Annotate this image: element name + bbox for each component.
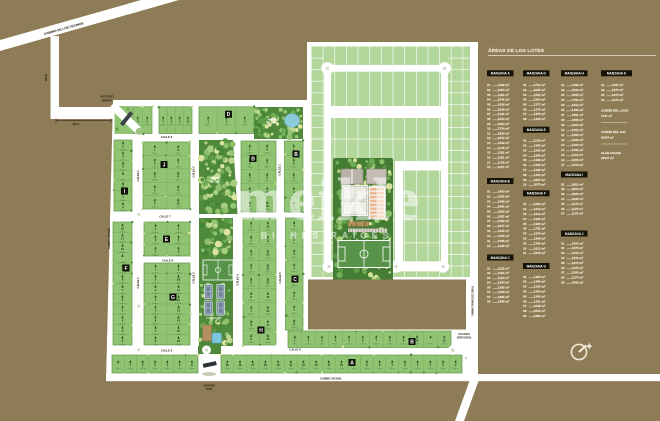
svg-text:......1208 m²: ......1208 m²	[567, 158, 584, 162]
svg-text:04: 04	[601, 98, 605, 102]
svg-text:16: 16	[561, 158, 565, 162]
svg-text:01: 01	[561, 182, 565, 186]
svg-text:D: D	[227, 112, 231, 118]
svg-text:10: 10	[177, 278, 181, 282]
svg-text:......1079 m²: ......1079 m²	[567, 163, 584, 167]
svg-text:10: 10	[121, 247, 125, 251]
svg-text:......1174 m²: ......1174 m²	[567, 276, 584, 280]
svg-text:......1054 m²: ......1054 m²	[493, 88, 510, 92]
svg-text:14: 14	[561, 148, 565, 152]
svg-text:05: 05	[487, 102, 491, 106]
svg-text:......1581 m²: ......1581 m²	[567, 113, 584, 117]
svg-text:09: 09	[523, 241, 527, 245]
svg-text:03: 03	[523, 148, 527, 152]
svg-text:02: 02	[487, 271, 491, 275]
svg-text:......1993 m²: ......1993 m²	[529, 98, 546, 102]
svg-text:......1081 m²: ......1081 m²	[493, 204, 510, 208]
svg-text:05: 05	[523, 294, 527, 298]
svg-text:03: 03	[523, 93, 527, 97]
svg-text:09: 09	[561, 123, 565, 127]
svg-text:SUR: SUR	[206, 387, 212, 391]
svg-text:......1750 m²: ......1750 m²	[567, 98, 584, 102]
svg-text:......2548 m²: ......2548 m²	[529, 304, 546, 308]
svg-text:10: 10	[186, 119, 190, 123]
svg-text:15: 15	[266, 295, 270, 299]
svg-text:......1865 m²: ......1865 m²	[493, 300, 510, 304]
svg-text:07: 07	[523, 304, 527, 308]
svg-text:05: 05	[523, 102, 527, 106]
svg-text:800 m: 800 m	[45, 74, 48, 81]
svg-text:18: 18	[238, 363, 242, 367]
svg-text:......1489 m²: ......1489 m²	[567, 108, 584, 112]
svg-text:13: 13	[302, 363, 306, 367]
svg-text:03: 03	[523, 212, 527, 216]
svg-text:07: 07	[523, 232, 527, 236]
svg-text:......1063 m²: ......1063 m²	[493, 229, 510, 233]
svg-text:05: 05	[523, 222, 527, 226]
svg-text:F: F	[124, 266, 127, 272]
svg-text:01: 01	[523, 83, 527, 87]
svg-text:......2712 m²: ......2712 m²	[529, 83, 546, 87]
svg-text:05: 05	[487, 209, 491, 213]
svg-text:17: 17	[487, 160, 491, 164]
svg-text:12: 12	[561, 138, 565, 142]
svg-text:......1234 m²: ......1234 m²	[493, 281, 510, 285]
svg-text:11: 11	[487, 239, 491, 243]
svg-text:......1714 m²: ......1714 m²	[493, 127, 510, 131]
svg-text:......1320 m²: ......1320 m²	[529, 285, 546, 289]
svg-text:06: 06	[523, 299, 527, 303]
svg-text:......1082 m²: ......1082 m²	[493, 209, 510, 213]
svg-text:......1041 m²: ......1041 m²	[493, 98, 510, 102]
svg-text:08: 08	[561, 118, 565, 122]
svg-text:......2228 m²: ......2228 m²	[567, 197, 584, 201]
svg-text:11: 11	[177, 288, 180, 292]
svg-text:11: 11	[487, 131, 491, 135]
svg-text:16: 16	[487, 156, 491, 160]
svg-text:......1199 m²: ......1199 m²	[493, 112, 510, 116]
svg-text:04: 04	[487, 98, 491, 102]
svg-text:B: B	[294, 152, 298, 158]
svg-text:03: 03	[601, 93, 605, 97]
svg-text:......1175 m²: ......1175 m²	[567, 207, 584, 211]
svg-text:......1810 m²: ......1810 m²	[529, 246, 546, 250]
svg-text:......1868 m²: ......1868 m²	[529, 237, 546, 241]
svg-text:......1184 m²: ......1184 m²	[493, 276, 510, 280]
svg-text:02: 02	[561, 187, 565, 191]
svg-text:......1339 m²: ......1339 m²	[493, 83, 510, 87]
svg-text:10: 10	[177, 202, 181, 206]
svg-text:15: 15	[561, 153, 565, 157]
svg-text:02: 02	[523, 88, 527, 92]
svg-text:......1558 m²: ......1558 m²	[567, 118, 584, 122]
svg-text:......1461 m²: ......1461 m²	[529, 299, 546, 303]
svg-text:......1394 m²: ......1394 m²	[529, 173, 546, 177]
svg-text:17: 17	[266, 323, 270, 327]
svg-text:03: 03	[561, 93, 565, 97]
svg-text:......1000 m²: ......1000 m²	[567, 133, 584, 137]
svg-text:07: 07	[487, 219, 491, 223]
svg-text:......1875 m²: ......1875 m²	[529, 232, 546, 236]
svg-text:01: 01	[487, 83, 491, 87]
svg-text:01: 01	[523, 202, 527, 206]
svg-text:G: G	[171, 295, 175, 301]
svg-text:04: 04	[523, 290, 527, 294]
svg-text:05: 05	[523, 158, 527, 162]
svg-text:800 m: 800 m	[73, 123, 80, 126]
svg-text:14: 14	[266, 281, 270, 285]
svg-text:MANZANA D: MANZANA D	[527, 72, 547, 76]
svg-text:CALLE 5: CALLE 5	[278, 272, 282, 284]
svg-text:01: 01	[561, 83, 565, 87]
svg-text:meikle: meikle	[236, 166, 421, 232]
svg-text:02: 02	[487, 194, 491, 198]
svg-text:MANZANA E: MANZANA E	[527, 128, 546, 132]
svg-text:......1044 m²: ......1044 m²	[493, 117, 510, 121]
svg-text:14: 14	[289, 363, 293, 367]
svg-text:......1484 m²: ......1484 m²	[529, 280, 546, 284]
svg-text:07: 07	[561, 212, 565, 216]
svg-text:19: 19	[226, 363, 230, 367]
svg-text:05: 05	[561, 261, 565, 265]
svg-text:......1514 m²: ......1514 m²	[567, 103, 584, 107]
svg-text:......1055 m²: ......1055 m²	[493, 194, 510, 198]
svg-text:......1073 m²: ......1073 m²	[607, 98, 624, 102]
svg-text:CAMINO VECINAL: CAMINO VECINAL	[108, 227, 111, 249]
svg-text:08: 08	[523, 309, 527, 313]
svg-text:06: 06	[487, 107, 491, 111]
svg-text:11: 11	[523, 251, 527, 255]
svg-text:02: 02	[601, 88, 605, 92]
svg-text:......1099 m²: ......1099 m²	[493, 107, 510, 111]
svg-text:ACCESO: ACCESO	[203, 384, 215, 388]
svg-text:DEL LAGO: DEL LAGO	[266, 121, 278, 124]
svg-text:......1182 m²: ......1182 m²	[493, 266, 510, 270]
svg-text:......1408 m²: ......1408 m²	[529, 163, 546, 167]
svg-text:CAMINO VECINAL: CAMINO VECINAL	[320, 378, 342, 381]
svg-text:18: 18	[487, 165, 491, 169]
svg-text:10: 10	[487, 234, 491, 238]
svg-text:07: 07	[561, 113, 565, 117]
svg-text:16: 16	[177, 339, 181, 343]
svg-text:NORTE: NORTE	[102, 98, 113, 102]
svg-text:......1350 m²: ......1350 m²	[529, 144, 546, 148]
svg-text:......1072 m²: ......1072 m²	[567, 256, 584, 260]
svg-text:09: 09	[487, 229, 491, 233]
svg-text:......1077 m²: ......1077 m²	[493, 224, 510, 228]
svg-text:01: 01	[487, 190, 491, 194]
svg-text:......1073 m²: ......1073 m²	[567, 246, 584, 250]
svg-text:09: 09	[523, 178, 527, 182]
svg-text:12: 12	[443, 338, 447, 342]
svg-text:18: 18	[266, 337, 270, 341]
svg-text:15: 15	[177, 329, 181, 333]
svg-text:......1073 m²: ......1073 m²	[607, 88, 624, 92]
svg-text:08: 08	[487, 117, 491, 121]
svg-text:10: 10	[415, 338, 419, 342]
svg-text:......1104 m²: ......1104 m²	[567, 153, 584, 157]
svg-text:02: 02	[487, 88, 491, 92]
svg-text:10234 m²: 10234 m²	[601, 135, 614, 139]
svg-text:......1161 m²: ......1161 m²	[493, 151, 510, 155]
svg-text:JARDÍN DEL SOL: JARDÍN DEL SOL	[601, 129, 626, 134]
svg-text:04: 04	[487, 204, 491, 208]
svg-text:06: 06	[561, 266, 565, 270]
svg-text:10: 10	[523, 183, 527, 187]
svg-text:......1399 m²: ......1399 m²	[567, 83, 584, 87]
svg-text:......1958 m²: ......1958 m²	[529, 222, 546, 226]
svg-text:17: 17	[251, 363, 255, 367]
svg-text:......1405 m²: ......1405 m²	[529, 117, 546, 121]
svg-text:CAMINO FRANCISCO REAL: CAMINO FRANCISCO REAL	[471, 285, 474, 316]
svg-text:MANZANA H: MANZANA H	[565, 72, 585, 76]
svg-text:07: 07	[561, 271, 565, 275]
svg-text:04: 04	[523, 217, 527, 221]
svg-text:......1375 m²: ......1375 m²	[529, 112, 546, 116]
svg-text:......1086 m²: ......1086 m²	[493, 199, 510, 203]
svg-text:......1039 m²: ......1039 m²	[493, 102, 510, 106]
svg-text:09: 09	[487, 122, 491, 126]
svg-text:......1613 m²: ......1613 m²	[529, 207, 546, 211]
svg-text:......1795 m²: ......1795 m²	[493, 234, 510, 238]
svg-text:......1840 m²: ......1840 m²	[529, 251, 546, 255]
svg-text:CALLE 3: CALLE 3	[192, 166, 196, 178]
svg-text:B: B	[410, 339, 414, 345]
svg-text:BIENES RAÍCES: BIENES RAÍCES	[261, 231, 393, 241]
svg-text:14: 14	[487, 146, 491, 150]
svg-text:08: 08	[487, 300, 491, 304]
svg-text:......1623 m²: ......1623 m²	[529, 217, 546, 221]
svg-text:......1002 m²: ......1002 m²	[567, 138, 584, 142]
svg-text:01: 01	[523, 275, 527, 279]
svg-text:04: 04	[523, 98, 527, 102]
svg-text:......1484 m²: ......1484 m²	[529, 290, 546, 294]
svg-text:02: 02	[523, 207, 527, 211]
svg-text:08: 08	[523, 117, 527, 121]
svg-text:10: 10	[487, 127, 491, 131]
svg-text:CALLE 9: CALLE 9	[161, 349, 173, 353]
svg-text:......3382 m²: ......3382 m²	[529, 314, 546, 318]
svg-text:09: 09	[523, 314, 527, 318]
svg-text:03: 03	[487, 276, 491, 280]
svg-text:06: 06	[561, 207, 565, 211]
svg-text:02: 02	[523, 144, 527, 148]
svg-text:B: B	[251, 156, 255, 162]
svg-text:08: 08	[561, 276, 565, 280]
svg-text:......2409 m²: ......2409 m²	[567, 88, 584, 92]
svg-text:......1072 m²: ......1072 m²	[567, 266, 584, 270]
svg-text:......1460 m²: ......1460 m²	[529, 275, 546, 279]
svg-text:......1602 m²: ......1602 m²	[529, 202, 546, 206]
svg-text:H: H	[259, 328, 263, 334]
svg-text:......1072 m²: ......1072 m²	[567, 251, 584, 255]
svg-text:......1088 m²: ......1088 m²	[493, 239, 510, 243]
svg-text:......1127 m²: ......1127 m²	[493, 165, 510, 169]
svg-text:......2367 m²: ......2367 m²	[529, 178, 546, 182]
svg-text:04: 04	[561, 197, 565, 201]
svg-text:07: 07	[487, 112, 491, 116]
svg-text:......2695 m²: ......2695 m²	[529, 88, 546, 92]
svg-text:13: 13	[487, 141, 491, 145]
svg-text:03: 03	[487, 93, 491, 97]
svg-text:MANZANA A: MANZANA A	[491, 72, 511, 76]
svg-text:10: 10	[340, 363, 344, 367]
svg-text:MANZANA I: MANZANA I	[565, 173, 583, 177]
svg-text:......2791 m²: ......2791 m²	[529, 93, 546, 97]
svg-text:10: 10	[121, 226, 125, 230]
svg-text:......1398 m²: ......1398 m²	[529, 168, 546, 172]
svg-text:......1062 m²: ......1062 m²	[567, 148, 584, 152]
svg-text:08: 08	[523, 237, 527, 241]
svg-text:06: 06	[487, 290, 491, 294]
svg-text:01: 01	[561, 241, 565, 245]
svg-text:......2000 m²: ......2000 m²	[567, 182, 584, 186]
svg-text:......1180 m²: ......1180 m²	[493, 93, 510, 97]
svg-text:MANZANA K: MANZANA K	[607, 72, 627, 76]
svg-text:......1543 m²: ......1543 m²	[529, 148, 546, 152]
svg-text:22047 m²: 22047 m²	[601, 156, 614, 160]
svg-text:02: 02	[561, 88, 565, 92]
svg-text:06: 06	[487, 214, 491, 218]
svg-text:......1073 m²: ......1073 m²	[607, 93, 624, 97]
svg-text:03: 03	[523, 285, 527, 289]
svg-text:......2000 m²: ......2000 m²	[567, 187, 584, 191]
svg-text:C: C	[293, 277, 297, 283]
svg-text:......1175 m²: ......1175 m²	[567, 212, 584, 216]
svg-text:A: A	[350, 360, 354, 366]
svg-text:07: 07	[523, 168, 527, 172]
svg-text:......1000 m²: ......1000 m²	[567, 241, 584, 245]
svg-text:06: 06	[523, 227, 527, 231]
svg-text:......2180 m²: ......2180 m²	[567, 192, 584, 196]
svg-text:......1000 m²: ......1000 m²	[567, 143, 584, 147]
svg-text:......1865 m²: ......1865 m²	[493, 295, 510, 299]
svg-text:......1460 m²: ......1460 m²	[493, 190, 510, 194]
svg-text:09: 09	[561, 281, 565, 285]
svg-text:CLUB HOUSE: CLUB HOUSE	[206, 318, 222, 320]
svg-text:......1656 m²: ......1656 m²	[529, 153, 546, 157]
svg-text:JARDÍN DEL LAGO: JARDÍN DEL LAGO	[601, 107, 629, 112]
svg-text:12: 12	[266, 253, 270, 257]
svg-text:08: 08	[523, 173, 527, 177]
svg-text:16: 16	[266, 309, 270, 313]
svg-text:......1175 m²: ......1175 m²	[567, 202, 584, 206]
svg-text:......1781 m²: ......1781 m²	[529, 227, 546, 231]
svg-text:7147 m²: 7147 m²	[601, 114, 612, 118]
svg-text:17: 17	[561, 163, 565, 167]
svg-text:04: 04	[487, 281, 491, 285]
svg-text:......1389 m²: ......1389 m²	[529, 158, 546, 162]
svg-text:......1366 m²: ......1366 m²	[493, 285, 510, 289]
svg-text:CALLE 6: CALLE 6	[161, 135, 173, 139]
svg-text:......1057 m²: ......1057 m²	[493, 214, 510, 218]
svg-text:15: 15	[277, 363, 281, 367]
svg-text:ACCESO: ACCESO	[458, 332, 470, 336]
svg-text:SERVICIOS: SERVICIOS	[457, 335, 472, 339]
svg-text:15: 15	[487, 151, 491, 155]
svg-text:......4402 m²: ......4402 m²	[567, 281, 584, 285]
svg-text:MANZANA J: MANZANA J	[565, 232, 584, 236]
svg-text:......1309 m²: ......1309 m²	[493, 141, 510, 145]
svg-text:11: 11	[121, 237, 124, 241]
svg-text:......1000 m²: ......1000 m²	[607, 83, 624, 87]
svg-text:ÁREAS DE LOS LOTES: ÁREAS DE LOS LOTES	[488, 47, 545, 54]
svg-text:07: 07	[523, 112, 527, 116]
svg-text:02: 02	[561, 246, 565, 250]
svg-text:......1465 m²: ......1465 m²	[529, 294, 546, 298]
svg-text:11: 11	[561, 133, 565, 137]
svg-text:......1181 m²: ......1181 m²	[493, 156, 510, 160]
svg-text:......1368 m²: ......1368 m²	[493, 290, 510, 294]
svg-text:05: 05	[561, 202, 565, 206]
svg-text:03: 03	[487, 199, 491, 203]
svg-text:......2534 m²: ......2534 m²	[529, 309, 546, 313]
svg-text:CALLE 3: CALLE 3	[192, 272, 196, 284]
svg-text:......1072 m²: ......1072 m²	[567, 261, 584, 265]
svg-text:......1143 m²: ......1143 m²	[493, 146, 510, 150]
svg-text:06: 06	[561, 108, 565, 112]
svg-text:CALLE 1: CALLE 1	[136, 277, 140, 289]
svg-text:03: 03	[561, 251, 565, 255]
svg-text:03: 03	[561, 192, 565, 196]
svg-text:MANZANA C: MANZANA C	[491, 256, 511, 260]
svg-text:01: 01	[487, 266, 491, 270]
svg-text:10: 10	[561, 128, 565, 132]
svg-text:12: 12	[315, 363, 319, 367]
svg-text:......3073 m²: ......3073 m²	[529, 183, 546, 187]
svg-text:DEL SOL: DEL SOL	[210, 180, 221, 183]
svg-text:MANZANA G: MANZANA G	[527, 264, 547, 268]
svg-text:13: 13	[561, 143, 565, 147]
svg-text:11: 11	[327, 363, 330, 367]
svg-text:13: 13	[177, 308, 181, 312]
svg-text:12: 12	[487, 136, 491, 140]
svg-text:......1079 m²: ......1079 m²	[493, 136, 510, 140]
svg-text:16: 16	[264, 363, 268, 367]
svg-text:CALLE 7: CALLE 7	[159, 214, 171, 218]
svg-text:06: 06	[523, 163, 527, 167]
svg-text:10: 10	[523, 246, 527, 250]
svg-text:......1809 m²: ......1809 m²	[493, 131, 510, 135]
svg-text:......1796 m²: ......1796 m²	[529, 241, 546, 245]
svg-text:CALLE 8: CALLE 8	[162, 258, 174, 262]
svg-text:J: J	[163, 162, 166, 168]
svg-text:06: 06	[523, 107, 527, 111]
svg-text:......1065 m²: ......1065 m²	[493, 244, 510, 248]
svg-text:05: 05	[561, 103, 565, 107]
svg-text:MANZANA B: MANZANA B	[491, 179, 511, 183]
svg-text:04: 04	[561, 98, 565, 102]
svg-text:13: 13	[266, 267, 270, 271]
svg-text:......1136 m²: ......1136 m²	[529, 139, 546, 143]
svg-text:MANZANA F: MANZANA F	[527, 192, 546, 196]
svg-text:......1094 m²: ......1094 m²	[493, 122, 510, 126]
svg-text:14: 14	[177, 319, 181, 323]
svg-text:......1139 m²: ......1139 m²	[493, 160, 510, 164]
svg-text:01: 01	[523, 139, 527, 143]
svg-text:02: 02	[523, 280, 527, 284]
svg-text:05: 05	[487, 285, 491, 289]
svg-text:04: 04	[561, 256, 565, 260]
svg-text:07: 07	[487, 295, 491, 299]
svg-text:......1183 m²: ......1183 m²	[493, 271, 510, 275]
svg-text:......1377 m²: ......1377 m²	[529, 102, 546, 106]
svg-text:......1612 m²: ......1612 m²	[529, 212, 546, 216]
svg-text:CLUB HOUSE: CLUB HOUSE	[601, 151, 621, 155]
svg-text:......1375 m²: ......1375 m²	[529, 107, 546, 111]
svg-text:CALLE 1: CALLE 1	[136, 170, 140, 182]
svg-text:CALLE 4: CALLE 4	[235, 274, 239, 286]
